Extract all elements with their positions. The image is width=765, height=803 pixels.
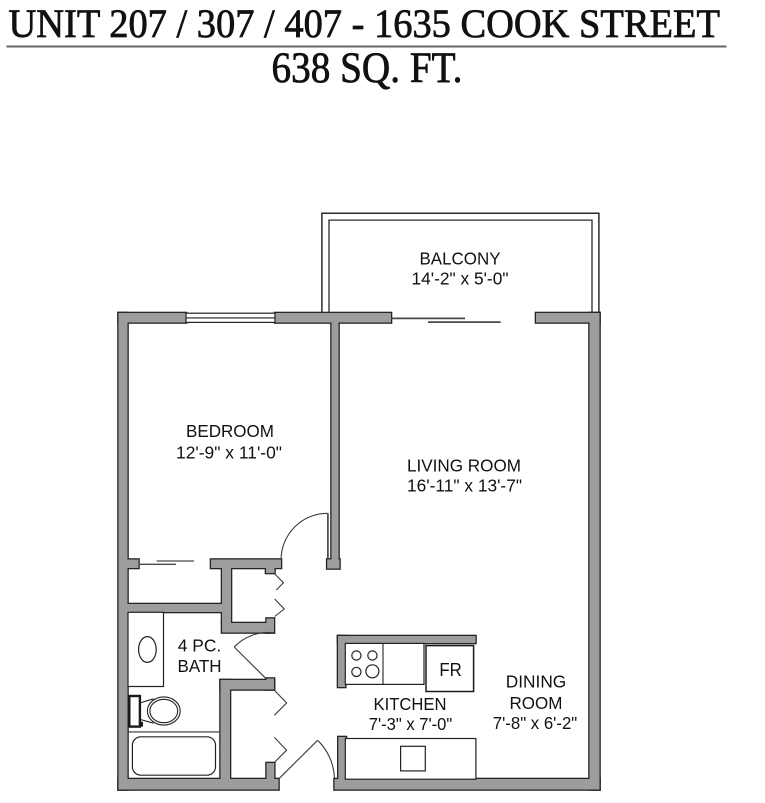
- svg-text:BATH: BATH: [178, 656, 222, 676]
- svg-text:KITCHEN: KITCHEN: [374, 694, 447, 714]
- svg-text:LIVING ROOM: LIVING ROOM: [407, 455, 521, 475]
- svg-text:14'-2" x 5'-0": 14'-2" x 5'-0": [412, 269, 509, 289]
- svg-text:16'-11" x 13'-7": 16'-11" x 13'-7": [407, 476, 522, 496]
- svg-text:ROOM: ROOM: [510, 693, 563, 713]
- svg-text:FR: FR: [439, 659, 461, 680]
- svg-text:UNIT 207 / 307 / 407 - 1635 CO: UNIT 207 / 307 / 407 - 1635 COOK STREET: [9, 1, 721, 46]
- svg-text:638 SQ. FT.: 638 SQ. FT.: [272, 45, 463, 92]
- svg-text:DINING: DINING: [506, 671, 567, 691]
- svg-text:7'-3" x 7'-0": 7'-3" x 7'-0": [369, 714, 453, 734]
- svg-text:4 PC.: 4 PC.: [178, 636, 222, 656]
- svg-text:BALCONY: BALCONY: [420, 249, 501, 269]
- svg-text:7'-8" x 6'-2": 7'-8" x 6'-2": [493, 713, 578, 733]
- svg-text:BEDROOM: BEDROOM: [186, 421, 274, 441]
- svg-text:12'-9" x 11'-0": 12'-9" x 11'-0": [176, 443, 282, 463]
